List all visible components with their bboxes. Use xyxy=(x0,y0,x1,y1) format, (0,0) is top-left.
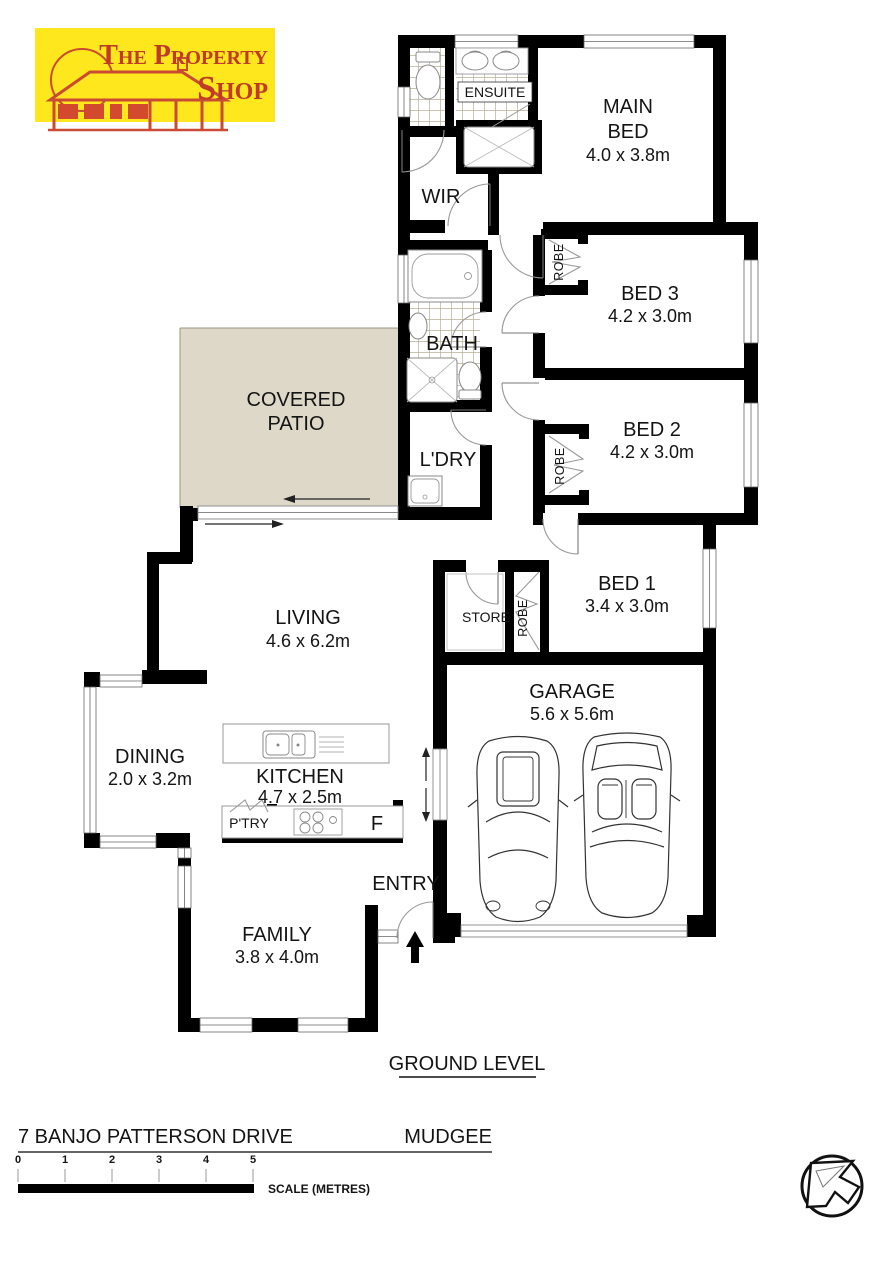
slide-arrow-down-icon xyxy=(422,812,430,822)
pantry-label: P'TRY xyxy=(229,815,269,831)
window-top-ensuite xyxy=(455,35,518,48)
bath-shower xyxy=(407,358,457,402)
car-sedan xyxy=(468,737,568,922)
bathtub xyxy=(408,250,482,302)
ground-level-label: GROUND LEVEL xyxy=(389,1053,546,1075)
living-label: LIVING xyxy=(275,607,341,629)
scale-tick-3: 3 xyxy=(156,1154,162,1166)
patio-label-1: COVERED xyxy=(247,389,346,411)
svg-text:ENSUITE: ENSUITE xyxy=(465,84,526,100)
bed2-dims: 4.2 x 3.0m xyxy=(610,442,694,462)
footer: 7 BANJO PATTERSON DRIVE MUDGEE 0 1 2 3 4… xyxy=(15,1126,862,1216)
robe-bed1-label: ROBE xyxy=(516,599,530,636)
house-windows-icon xyxy=(58,104,148,119)
garage-dims: 5.6 x 5.6m xyxy=(530,704,614,724)
ldry-label: L'DRY xyxy=(420,449,477,471)
dining-label: DINING xyxy=(115,746,185,768)
entry-direction-arrow-icon xyxy=(406,931,424,963)
scale-units-label: SCALE (METRES) xyxy=(268,1182,370,1196)
ensuite-label: ENSUITE xyxy=(458,82,532,102)
door-bed3 xyxy=(502,296,539,333)
window-family-bottom-1 xyxy=(200,1018,252,1032)
scale-bar: 0 1 2 3 4 5 SCALE (METRES) xyxy=(15,1154,370,1196)
fridge-label: F xyxy=(371,813,383,835)
scale-tick-4: 4 xyxy=(203,1154,210,1166)
window-family-left xyxy=(178,866,191,908)
car-convertible xyxy=(574,733,680,918)
door-store xyxy=(466,572,498,604)
robe-bed3-label: ROBE xyxy=(552,243,566,280)
garage-sliding-door xyxy=(422,747,447,822)
scale-tick-1: 1 xyxy=(62,1154,68,1166)
bath-label: BATH xyxy=(426,333,478,355)
kitchen-label: KITCHEN xyxy=(256,766,344,788)
door-ldry xyxy=(451,410,486,445)
bath-toilet xyxy=(459,362,481,399)
window-top-main-bed xyxy=(584,35,694,48)
window-dining-bay-top xyxy=(100,675,142,687)
bed1-label: BED 1 xyxy=(598,573,656,595)
laundry-tub xyxy=(408,476,442,506)
slide-arrow-up-icon xyxy=(422,747,430,757)
dining-dims: 2.0 x 3.2m xyxy=(108,769,192,789)
bed2-label: BED 2 xyxy=(623,419,681,441)
garage-cars xyxy=(468,733,680,922)
slide-arrow-right-icon xyxy=(272,520,284,528)
cooktop xyxy=(294,809,342,835)
window-entry-sidelight xyxy=(378,930,398,943)
garage-label: GARAGE xyxy=(529,681,615,703)
scale-tick-marks xyxy=(18,1169,253,1182)
window-dining-bay-bottom xyxy=(100,836,156,848)
main-bed-label-1: MAIN xyxy=(603,96,653,118)
main-bed-dims: 4.0 x 3.8m xyxy=(586,145,670,165)
bath-basin xyxy=(409,313,427,339)
store-label: STORE xyxy=(462,609,510,625)
bed3-label: BED 3 xyxy=(621,283,679,305)
family-dims: 3.8 x 4.0m xyxy=(235,947,319,967)
wir-label: WIR xyxy=(422,186,461,208)
kitchen-island xyxy=(223,724,389,763)
logo-text-line2: Shop xyxy=(197,70,268,107)
bed1-dims: 3.4 x 3.0m xyxy=(585,596,669,616)
window-bed3-right xyxy=(744,260,758,343)
window-bed1-right xyxy=(703,549,716,628)
window-dining-family-corner xyxy=(178,848,191,858)
level-title: GROUND LEVEL xyxy=(389,1053,546,1077)
garage-roller-door xyxy=(461,925,687,937)
property-shop-logo: The Property Shop xyxy=(35,28,275,130)
ensuite-toilet xyxy=(416,52,440,99)
door-bed2 xyxy=(502,383,539,420)
scale-bar-rect xyxy=(18,1184,254,1193)
kitchen-dims: 4.7 x 2.5m xyxy=(258,787,342,807)
scale-tick-5: 5 xyxy=(250,1154,256,1166)
living-dims: 4.6 x 6.2m xyxy=(266,631,350,651)
robe-bifold-doors xyxy=(516,240,583,650)
scale-tick-0: 0 xyxy=(15,1154,21,1166)
window-family-bottom-2 xyxy=(298,1018,348,1032)
floorplan-page: The Property Shop xyxy=(0,0,887,1279)
scale-tick-2: 2 xyxy=(109,1154,115,1166)
family-label: FAMILY xyxy=(242,924,312,946)
bed3-dims: 4.2 x 3.0m xyxy=(608,306,692,326)
window-dining-bay-left xyxy=(84,687,96,833)
window-ensuite-left xyxy=(398,87,410,117)
suburb-label: MUDGEE xyxy=(404,1126,492,1148)
door-bed1 xyxy=(543,519,578,554)
window-bed2-right xyxy=(744,403,758,487)
address-label: 7 BANJO PATTERSON DRIVE xyxy=(18,1126,293,1148)
floorplan-canvas: The Property Shop xyxy=(0,0,887,1279)
logo-text-line1: The Property xyxy=(99,40,268,71)
patio-label-2: PATIO xyxy=(267,413,324,435)
north-arrow xyxy=(802,1156,862,1216)
ensuite-vanity xyxy=(456,48,528,74)
main-bed-label-2: BED xyxy=(607,121,648,143)
entry-label: ENTRY xyxy=(372,873,439,895)
robe-bed2-label: ROBE xyxy=(553,447,567,484)
